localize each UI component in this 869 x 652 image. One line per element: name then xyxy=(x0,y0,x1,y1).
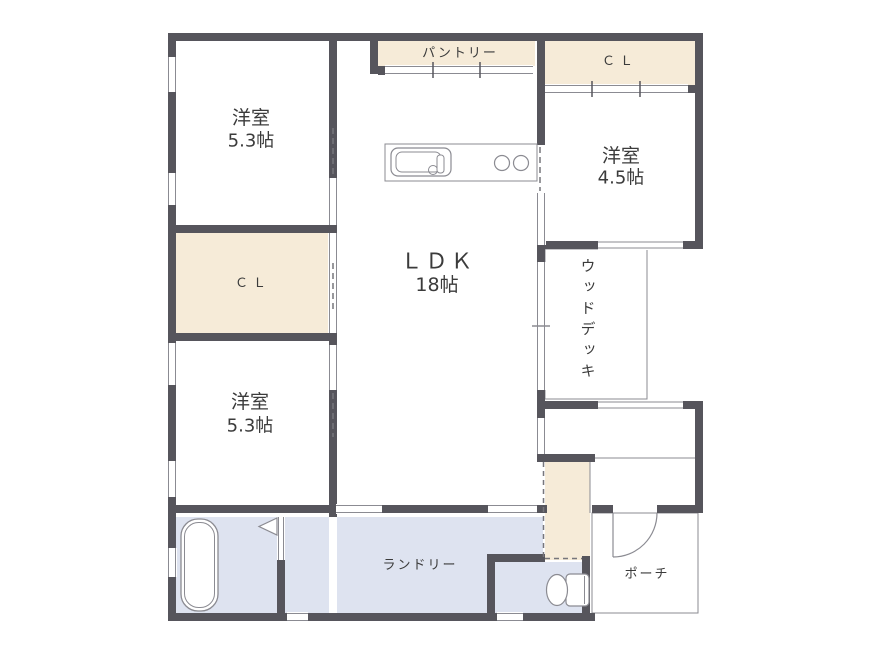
label-wood-deck: ウッドデッキ xyxy=(578,258,599,384)
label-bedroom-top-left-name: 洋室 xyxy=(232,109,270,129)
window-left-5 xyxy=(167,548,177,577)
wall-hall-south xyxy=(537,454,595,462)
wall-deck-south-a xyxy=(537,401,598,409)
wall-porch-top-b xyxy=(657,505,703,513)
wall-closet-left-top xyxy=(168,225,337,233)
floorplan-canvas: 洋室 5.3帖 洋室 5.3帖 洋室 4.5帖 ＬＤＫ 18帖 パントリー ＣＬ… xyxy=(0,0,869,652)
floorplan-drawing xyxy=(0,0,869,652)
window-lower-north xyxy=(598,400,683,410)
washroom-fill xyxy=(285,517,329,613)
entry-fill xyxy=(545,462,590,560)
wall-ldk-south-a xyxy=(168,505,336,513)
label-porch: ポーチ xyxy=(624,568,669,582)
wall-nub-cl-right xyxy=(688,85,695,93)
laundry-opening-b xyxy=(488,504,537,514)
wall-ldk-south-nub xyxy=(537,505,547,513)
hall-opening xyxy=(536,418,546,454)
label-pantry: パントリー xyxy=(422,47,498,61)
label-bedroom-bottom-left-name: 洋室 xyxy=(231,393,269,413)
label-closet-top-right: ＣＬ xyxy=(602,55,638,69)
outer-wall-right-lower xyxy=(695,401,703,513)
window-left-1 xyxy=(167,57,177,92)
wall-ldk-east-a xyxy=(537,33,545,145)
window-left-4 xyxy=(167,461,177,497)
wall-bedroom3-south-a xyxy=(537,241,598,249)
label-bedroom-bottom-left-size: 5.3帖 xyxy=(227,418,274,437)
kitchen-counter xyxy=(385,144,537,181)
label-ldk-size: 18帖 xyxy=(415,276,458,296)
wall-bedroom3-south-b xyxy=(683,241,703,249)
label-bedroom-top-left-size: 5.3帖 xyxy=(228,133,275,152)
bath-door-opening xyxy=(279,517,284,560)
label-ldk-name: ＬＤＫ xyxy=(400,250,475,273)
label-laundry: ランドリー xyxy=(382,559,457,573)
wall-toilet-west xyxy=(487,554,495,621)
outer-wall-left xyxy=(168,33,176,621)
window-left-3 xyxy=(167,343,177,385)
wall-bath-east xyxy=(277,560,285,613)
window-bedroom3-south xyxy=(598,240,683,250)
window-left-2 xyxy=(167,173,177,205)
outer-wall-bottom xyxy=(168,613,595,621)
window-bottom-2 xyxy=(497,612,523,622)
label-bedroom-right-size: 4.5帖 xyxy=(598,170,645,189)
wall-toilet-north xyxy=(487,554,545,562)
wet-area-fills xyxy=(176,517,582,613)
toilet-icon xyxy=(547,574,590,606)
outer-wall-right-upper xyxy=(695,33,703,249)
wall-porch-top-a xyxy=(592,505,613,513)
closet-left-door xyxy=(328,233,338,333)
porch-outline xyxy=(592,513,698,613)
wall-deck-south-b xyxy=(683,401,703,409)
laundry-opening-a xyxy=(336,504,382,514)
window-bottom-1 xyxy=(287,612,308,622)
outer-wall-top xyxy=(168,33,703,41)
label-bedroom-right-name: 洋室 xyxy=(602,147,640,167)
label-closet-left: ＣＬ xyxy=(235,277,271,291)
wall-ldk-south-b xyxy=(382,505,488,513)
wall-nub-pantry xyxy=(378,66,385,75)
bathtub-icon xyxy=(181,519,218,611)
wall-closet-left-bottom xyxy=(168,333,337,341)
wall-pantry-west xyxy=(370,33,378,74)
